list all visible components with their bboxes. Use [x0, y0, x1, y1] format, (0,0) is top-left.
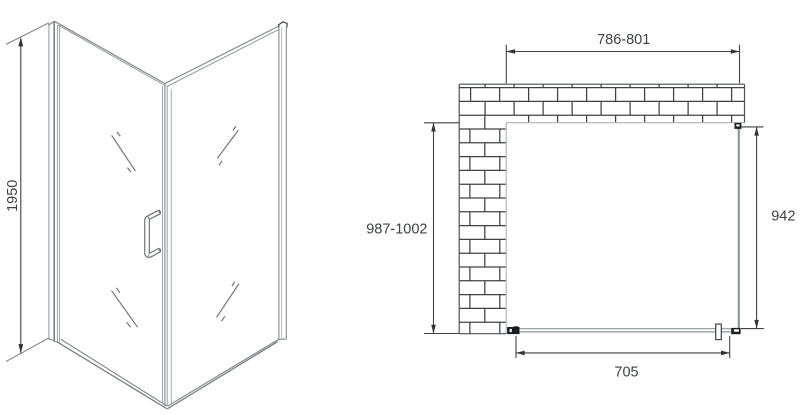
svg-text:705: 705: [614, 365, 638, 381]
svg-text:1950: 1950: [5, 180, 21, 212]
svg-text:786-801: 786-801: [597, 32, 650, 48]
svg-text:942: 942: [771, 209, 795, 225]
svg-text:987-1002: 987-1002: [366, 221, 427, 237]
